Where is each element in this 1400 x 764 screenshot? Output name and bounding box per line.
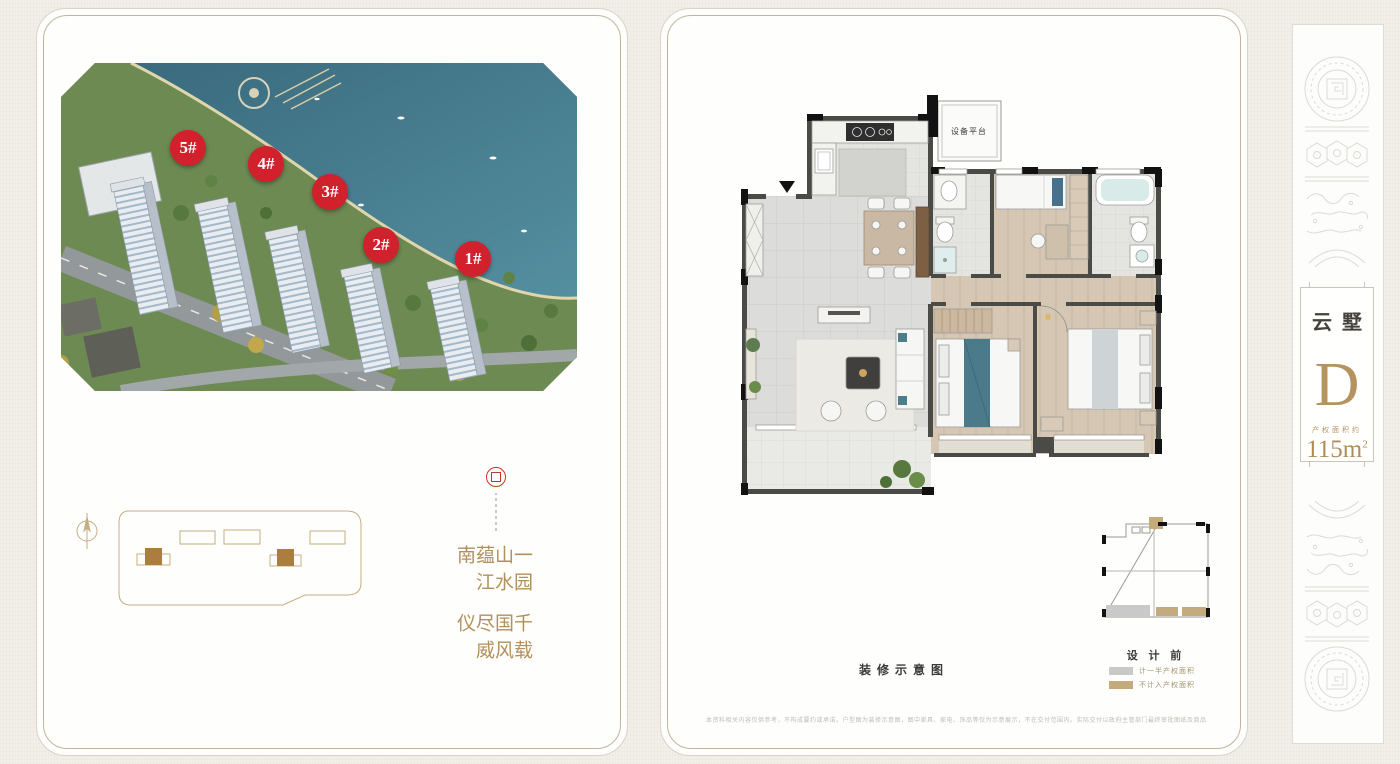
unit-letter: D [1315, 351, 1360, 419]
equipment-platform-label: 设备平台 [951, 126, 987, 136]
floor-plan: 设备平台 [696, 89, 1186, 519]
badge-label: 5# [180, 138, 197, 158]
card-tick [1309, 282, 1310, 288]
brand-seal-column [461, 467, 531, 531]
badge-label: 4# [258, 154, 275, 174]
brand-seal-icon [486, 467, 506, 487]
slogan-line-1: 一园山水蕴江南 [455, 545, 531, 599]
site-key-plan [67, 501, 377, 626]
aerial-photo-art [61, 63, 577, 391]
brand-caption-mark [495, 493, 497, 531]
legend-row-excluded-area: 不计入产权面积 [1109, 680, 1195, 690]
floorplan-caption: 装修示意图 [824, 661, 984, 678]
building-badge-1: 1# [455, 241, 491, 277]
mini-bay-window [1182, 607, 1206, 616]
mini-plan-title: 设 计 前 [1096, 647, 1216, 663]
site-building-outline [180, 531, 215, 544]
entry-direction-icon [779, 181, 795, 193]
area-superscript: 2 [1362, 439, 1368, 451]
area-label: 产权面积约 [1312, 425, 1362, 435]
card-tick [1364, 461, 1365, 467]
disclaimer-text: 本资料相关内容仅供参考，不构成要约或承诺。户型图为装修示意图，图中家具、家电、饰… [706, 715, 1206, 724]
building-badge-4: 4# [248, 146, 284, 182]
card-tick [1364, 282, 1365, 288]
badge-label: 1# [465, 249, 482, 269]
mini-bay-window [1156, 607, 1178, 616]
legend-label: 不计入产权面积 [1139, 680, 1195, 690]
site-building-outline [310, 531, 345, 544]
legend-label: 计一半产权面积 [1139, 666, 1195, 676]
building-badge-3: 3# [312, 174, 348, 210]
site-building-highlighted [277, 549, 294, 566]
unit-card: 云墅 D 产权面积约 115m2 [1300, 287, 1374, 462]
legend-swatch-tan [1109, 681, 1133, 689]
mini-plan [1096, 509, 1216, 644]
badge-label: 2# [373, 235, 390, 255]
mini-balcony-half-area [1106, 605, 1150, 617]
slogan-block: 一园山水蕴江南 千载国风尽威仪 [455, 467, 531, 667]
building-badge-2: 2# [363, 227, 399, 263]
site-building-outline [224, 530, 260, 544]
ornament-art-top [1293, 31, 1381, 271]
slogan-line-2: 千载国风尽威仪 [455, 613, 531, 667]
left-panel: 5# 4# 3# 2# 1# [36, 8, 628, 756]
area-number: 115m [1306, 436, 1362, 463]
badge-label: 3# [322, 182, 339, 202]
legend-swatch-gray [1109, 667, 1133, 675]
area-value: 115m2 [1306, 437, 1368, 462]
compass-rose-icon [77, 513, 97, 549]
equipment-platform: 设备平台 [938, 101, 1001, 161]
legend-row-half-area: 计一半产权面积 [1109, 666, 1195, 676]
side-ornament-column: 云墅 D 产权面积约 115m2 [1292, 24, 1384, 744]
area-legend: 计一半产权面积 不计入产权面积 [1109, 666, 1195, 690]
aerial-photo: 5# 4# 3# 2# 1# [61, 63, 577, 391]
mini-wall-accents [1102, 522, 1210, 617]
floorplan-panel: 设备平台 [660, 8, 1248, 756]
building-badge-5: 5# [170, 130, 206, 166]
card-tick [1309, 461, 1310, 467]
ornament-art-bottom [1293, 497, 1381, 737]
site-building-highlighted [145, 548, 162, 565]
series-name: 云墅 [1302, 306, 1372, 335]
